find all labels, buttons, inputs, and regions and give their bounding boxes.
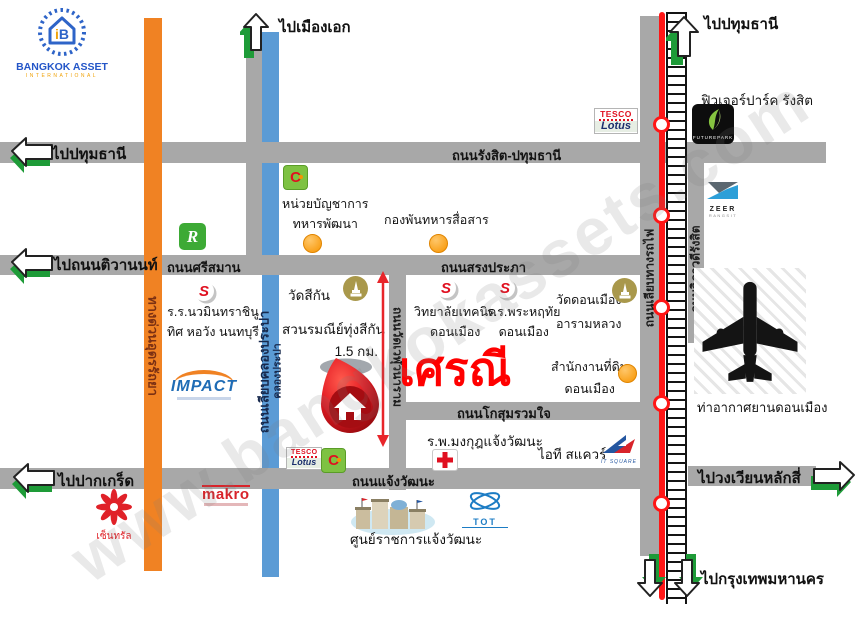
road-label-kosum-ruamjai: ถนนโกสุมรวมใจ bbox=[457, 403, 551, 424]
project-name: เศรณี bbox=[399, 333, 511, 406]
road-khlong-prapa bbox=[262, 32, 279, 577]
direction-label-muang-ake: ไปเมืองเอก bbox=[279, 15, 351, 39]
arrow-left-icon bbox=[10, 136, 56, 183]
direction-label-pathum-left: ไปปทุมธานี bbox=[52, 142, 126, 166]
road-expressway bbox=[144, 18, 162, 571]
arrow-up-icon bbox=[240, 12, 272, 63]
govt-center-label: ศูนย์ราชการแจ้งวัฒนะ bbox=[350, 528, 480, 550]
impact-logo: IMPACT bbox=[168, 370, 240, 400]
land-office-dot bbox=[618, 364, 637, 383]
logo-name: BANGKOK ASSET bbox=[14, 61, 110, 73]
temple-icon bbox=[612, 278, 637, 303]
direction-label-tiwanon: ไปถนนติวานนท์ bbox=[54, 253, 158, 277]
location-map: ไปเมืองเอก ไปปทุมธานี ไปปทุมธานี ไปถนนติ… bbox=[0, 0, 861, 620]
arrow-down-icon bbox=[671, 552, 703, 603]
road-label-chaengwattana: ถนนแจ้งวัฒนะ bbox=[352, 471, 435, 492]
defense-hq-label: หน่วยบัญชาการ ทหารพัฒนา bbox=[282, 194, 369, 234]
makro-logo: makro bbox=[202, 485, 250, 506]
direction-label-bangkok: ไปกรุงเทพมหานคร bbox=[701, 567, 824, 591]
logo-subtitle: INTERNATIONAL bbox=[14, 73, 110, 79]
wat-sikan-label: วัดสีกัน bbox=[288, 284, 330, 306]
school-s-icon: S bbox=[495, 278, 515, 298]
it-square-logo: IT SQUARE bbox=[597, 434, 641, 465]
direction-label-pathum-top: ไปปทุมธานี bbox=[704, 12, 778, 36]
wat-donmuang-label: วัดดอนเมือง อารามหลวง bbox=[556, 290, 622, 334]
temple-icon bbox=[343, 276, 368, 301]
arrow-right-icon bbox=[810, 460, 856, 507]
airplane-icon bbox=[700, 268, 800, 399]
arrow-left-icon bbox=[12, 462, 58, 509]
robinson-icon: R bbox=[179, 223, 206, 250]
traffic-dot bbox=[429, 234, 448, 253]
future-park-logo: FUTUREPARK bbox=[692, 104, 734, 144]
airport-label: ท่าอากาศยานดอนเมือง bbox=[697, 397, 828, 418]
tot-logo: TOT bbox=[462, 490, 508, 528]
project-pin bbox=[312, 352, 392, 452]
big-c-icon: C bbox=[283, 165, 308, 190]
arrow-up-icon bbox=[666, 15, 702, 70]
signal-battalion-label: กองพันทหารสื่อสาร bbox=[384, 210, 489, 230]
traffic-dot bbox=[303, 234, 322, 253]
railway-station-dot bbox=[653, 495, 670, 512]
arrow-down-icon bbox=[634, 552, 666, 603]
railway-station-dot bbox=[653, 116, 670, 133]
road-label-srisaman: ถนนศรีสมาน bbox=[167, 257, 241, 278]
arrow-left-icon bbox=[10, 247, 56, 294]
red-cross-icon bbox=[432, 449, 458, 471]
bangkok-asset-logo: iB BANGKOK ASSET INTERNATIONAL bbox=[14, 6, 110, 82]
direction-label-lak-si: ไปวงเวียนหลักสี่ bbox=[698, 466, 801, 490]
railway-station-dot bbox=[653, 207, 670, 224]
suan-romnee-label: สวนรมณีย์ทุ่งสีกัน bbox=[282, 318, 385, 340]
tesco-lotus-logo: TESCOLotus bbox=[594, 108, 638, 134]
school-s-icon: S bbox=[194, 281, 214, 301]
logo-b: B bbox=[59, 26, 69, 42]
land-office-label: สำนักงานที่ดิน ดอนเมือง bbox=[551, 357, 628, 399]
school-s-icon: S bbox=[436, 278, 456, 298]
road-label-rangsit-pathum: ถนนรังสิต-ปทุมธานี bbox=[452, 145, 561, 166]
zeer-logo: ZEER RANGSIT bbox=[703, 181, 743, 218]
railway-station-dot bbox=[653, 395, 670, 412]
central-logo: เซ็นทรัล bbox=[92, 488, 136, 544]
road-label-songprapha: ถนนสรงประภา bbox=[441, 257, 526, 278]
nawamin-school-label: ร.ร.นวมินทราชินู ทิศ หอวัง นนทบุรี bbox=[167, 302, 259, 342]
